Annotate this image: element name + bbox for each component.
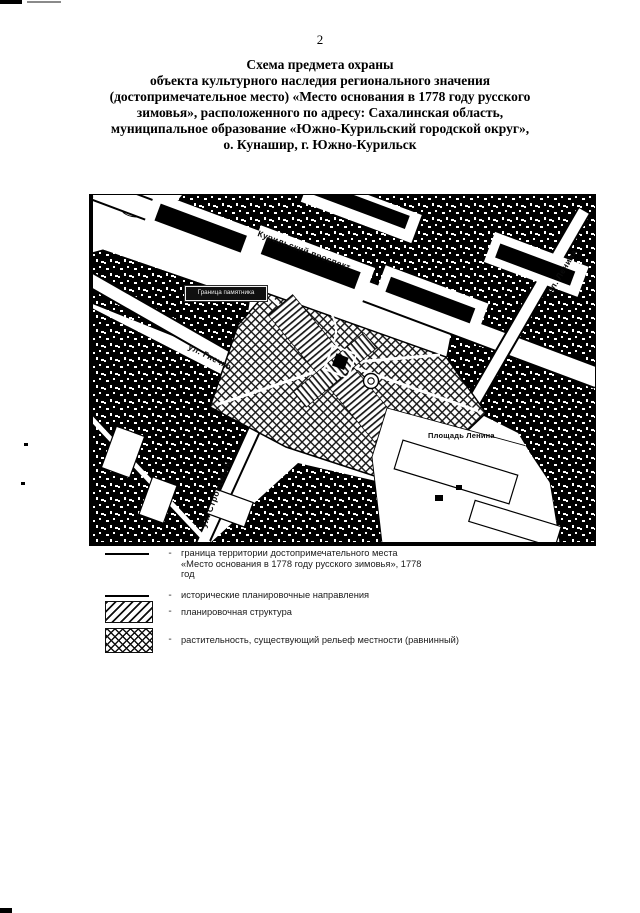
scan-speck-2 [21,482,25,485]
map-frame-left [90,195,93,545]
scan-smudge-top [0,0,22,4]
document-title: Схема предмета охраны объекта культурног… [40,57,600,152]
monument-marker-icon [364,374,379,389]
legend-label: растительность, существующий рельеф мест… [181,635,511,646]
scan-smudge-top-dash [27,1,61,3]
legend-label: исторические планировочные направления [181,590,501,601]
legend-solid-line-symbol [105,595,149,597]
title-line: муниципальное образование «Южно-Курильск… [40,121,600,137]
scan-speck-1 [24,443,28,446]
title-line: (достопримечательное место) «Место основ… [40,89,600,105]
title-line: зимовья», расположенного по адресу: Саха… [40,105,600,121]
legend-separator: - [159,634,181,645]
place-label-monument-boundary: Граница памятника [185,286,267,301]
legend-separator: - [159,590,181,601]
protection-scheme-map: Курильский проспект ул. Гнечко ул. Строи… [90,195,595,545]
aerial-photo [90,195,595,545]
legend-row-vegetation: - растительность, существующий рельеф ме… [105,628,511,653]
legend-label: планировочная структура [181,607,501,618]
scanned-document-page: { "page": { "number": "2" }, "title": { … [0,0,640,913]
title-line: объекта культурного наследия регионально… [40,73,600,89]
title-line: Схема предмета охраны [40,57,600,73]
map-legend: - граница территории достопримечательног… [105,546,595,666]
legend-diagonal-hatch-symbol [105,601,153,623]
map-frame-bottom [90,542,595,545]
place-label-lenin-square: Площадь Ленина [428,431,495,440]
legend-row-directions: - исторические планировочные направления [105,590,501,601]
page-number: 2 [40,32,600,48]
legend-separator: - [159,606,181,617]
legend-row-structure: - планировочная структура [105,601,501,623]
title-line: о. Кунашир, г. Южно-Курильск [40,137,600,153]
legend-row-boundary: - граница территории достопримечательног… [105,548,426,580]
legend-solid-line-symbol [105,553,149,555]
legend-separator: - [159,548,181,559]
legend-label: граница территории достопримечательного … [181,548,426,580]
scan-smudge-bottom [0,908,12,913]
legend-cross-hatch-symbol [105,628,153,653]
